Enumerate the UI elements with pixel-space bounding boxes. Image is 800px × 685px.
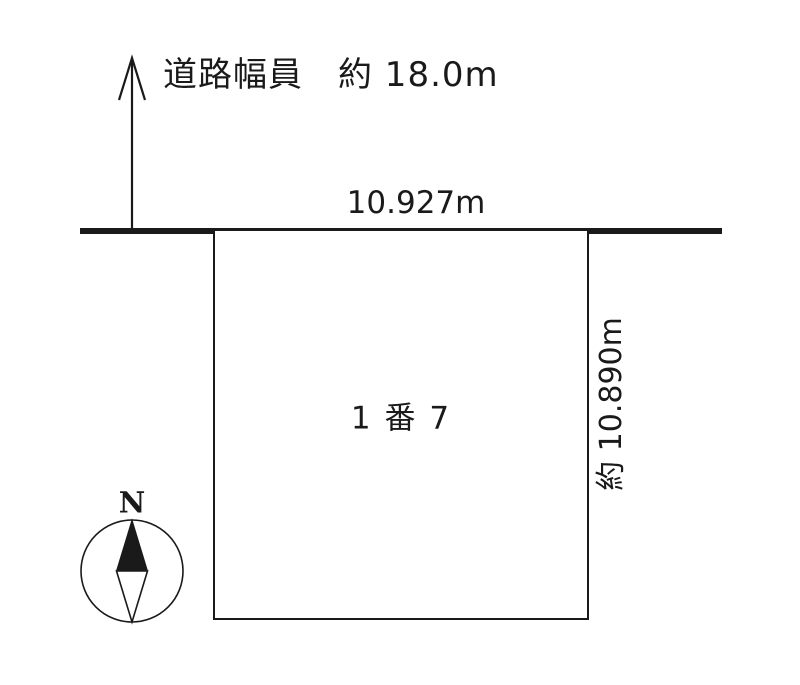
frontage-dimension-label: 10.927m <box>347 186 486 220</box>
road-width-label: 道路幅員 約 18.0m <box>163 56 499 94</box>
lot-number-label: 1 番 7 <box>351 393 451 438</box>
land-plot-diagram: 道路幅員 約 18.0m 10.927m 1 番 7 約 10.890m N <box>0 0 800 685</box>
compass-north-label: N <box>119 489 146 518</box>
road-direction-arrow-icon <box>108 50 156 234</box>
compass-rose-icon <box>78 516 186 626</box>
depth-dimension-label: 約 10.890m <box>586 317 630 491</box>
